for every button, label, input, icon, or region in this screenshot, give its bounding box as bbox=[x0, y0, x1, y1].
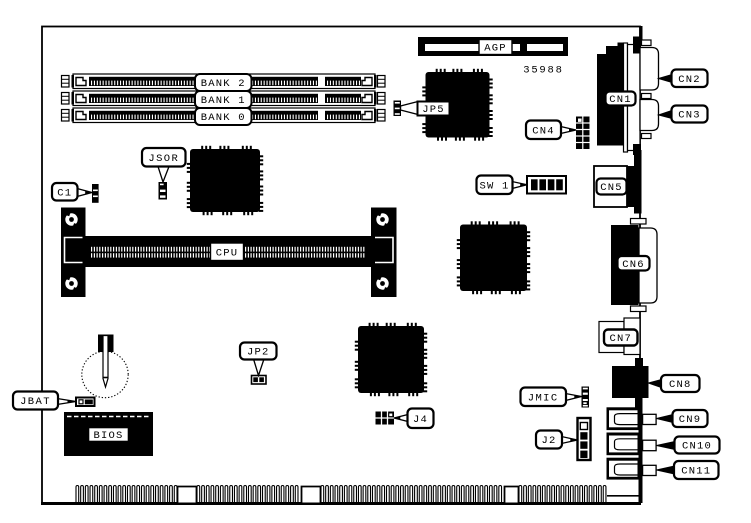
svg-text:CPU: CPU bbox=[216, 247, 239, 259]
svg-text:BANK 0: BANK 0 bbox=[201, 112, 246, 124]
svg-text:CN10: CN10 bbox=[682, 441, 712, 453]
svg-text:CN4: CN4 bbox=[532, 125, 555, 137]
svg-text:J4: J4 bbox=[413, 414, 428, 426]
svg-text:JSOR: JSOR bbox=[148, 153, 179, 165]
svg-text:SW 1: SW 1 bbox=[479, 180, 509, 192]
svg-text:BANK 1: BANK 1 bbox=[201, 95, 246, 107]
svg-text:CN9: CN9 bbox=[679, 414, 702, 426]
svg-text:CN11: CN11 bbox=[681, 466, 711, 478]
svg-text:J2: J2 bbox=[541, 435, 556, 447]
svg-text:BANK 2: BANK 2 bbox=[201, 78, 246, 90]
svg-text:JBAT: JBAT bbox=[20, 396, 51, 408]
svg-text:CN7: CN7 bbox=[610, 333, 633, 345]
svg-text:CN8: CN8 bbox=[669, 379, 692, 391]
svg-text:JMIC: JMIC bbox=[528, 392, 559, 404]
svg-text:CN3: CN3 bbox=[678, 110, 701, 122]
svg-text:AGP: AGP bbox=[484, 43, 507, 55]
svg-text:JP2: JP2 bbox=[247, 347, 270, 359]
svg-text:CN5: CN5 bbox=[600, 182, 623, 194]
svg-text:CN6: CN6 bbox=[622, 259, 645, 271]
svg-text:CN2: CN2 bbox=[678, 74, 701, 86]
svg-text:CN1: CN1 bbox=[609, 94, 632, 106]
svg-text:C1: C1 bbox=[57, 187, 72, 199]
svg-text:BIOS: BIOS bbox=[93, 430, 123, 442]
svg-text:JP5: JP5 bbox=[422, 104, 445, 116]
svg-text:35988: 35988 bbox=[523, 65, 564, 77]
